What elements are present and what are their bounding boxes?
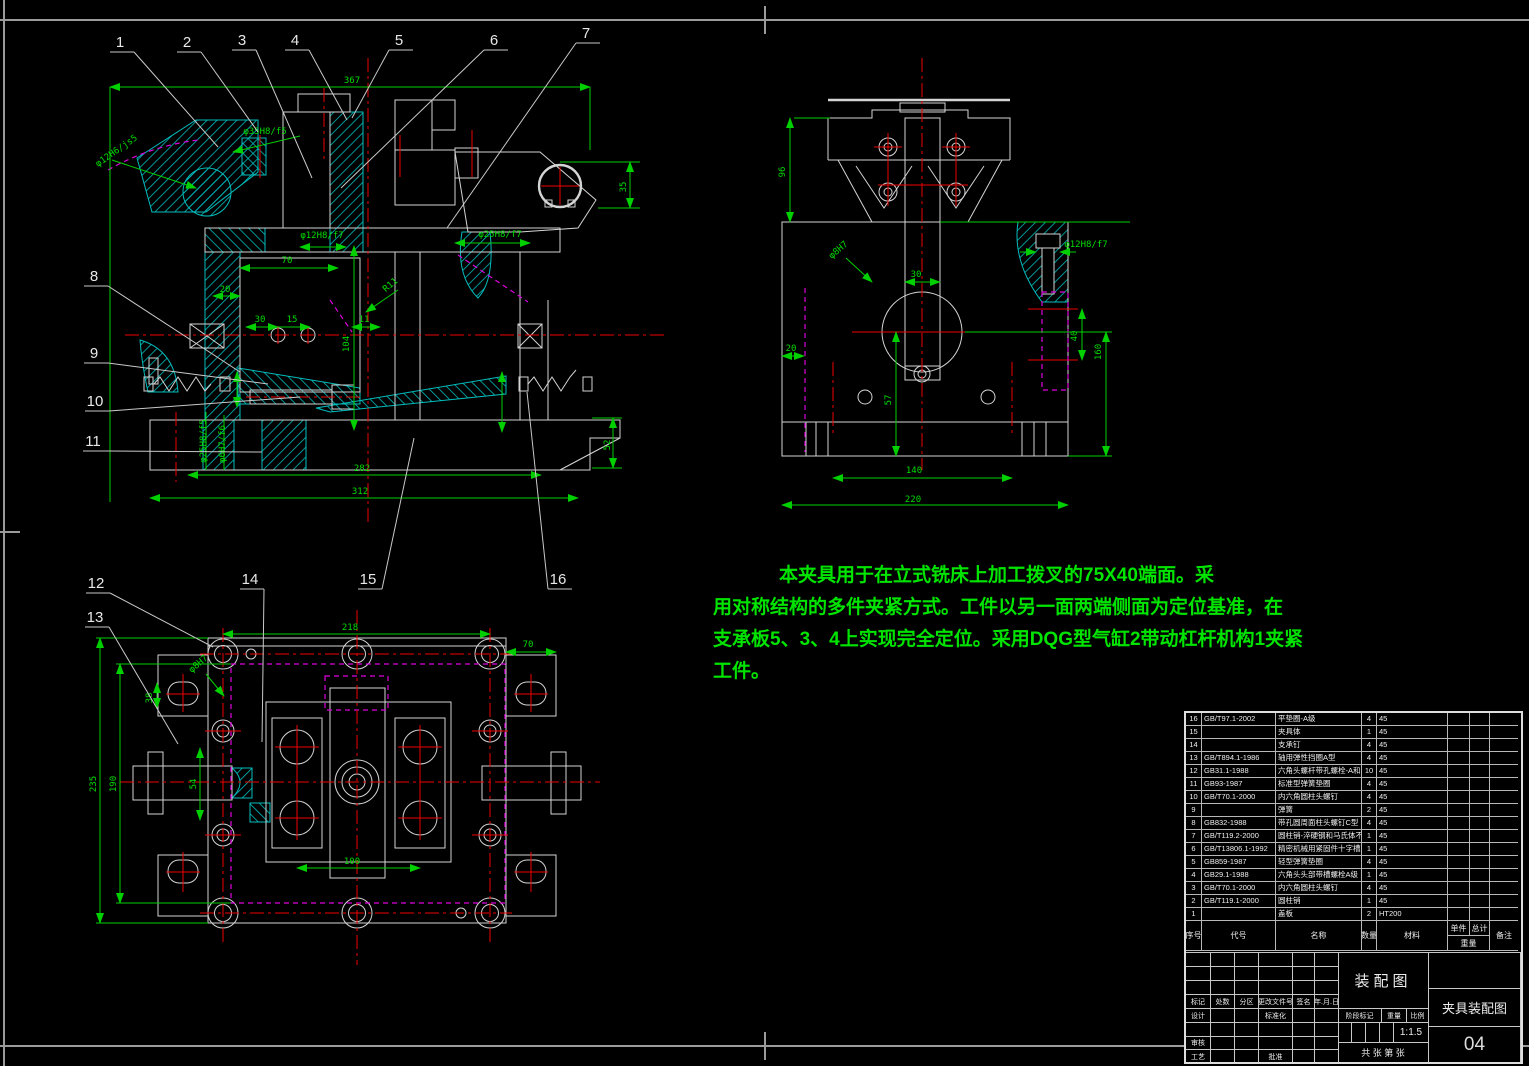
titleblock-date: 年.月.日 (1314, 994, 1339, 1009)
titleblock-cell (1234, 1049, 1259, 1064)
dimension-label: φ12H8/f7 (300, 231, 343, 241)
bom-name: 平垫圈-A级 (1276, 713, 1361, 725)
balloon-number: 15 (360, 571, 377, 588)
bom-qty: 2 (1362, 908, 1376, 920)
bom-remark (1490, 726, 1518, 738)
bom-total (1470, 739, 1489, 751)
titleblock-sign: 签名 (1292, 994, 1315, 1009)
bom-name: 六角头头部带槽螺栓A级 (1276, 869, 1361, 881)
bom-remark (1490, 752, 1518, 764)
bom-header-code: 代号 (1202, 921, 1275, 950)
dimension-label: 100 (344, 857, 360, 867)
titleblock-cell (1314, 1049, 1339, 1064)
bom-code (1202, 739, 1275, 751)
bom-no: 1 (1186, 908, 1201, 920)
titleblock-cell (1292, 980, 1315, 995)
dimension-label: 104 (342, 336, 352, 352)
titleblock-cell (1210, 952, 1235, 967)
bom-qty: 1 (1362, 830, 1376, 842)
bom-total (1470, 843, 1489, 855)
balloon-4: 4 (285, 32, 347, 120)
bom-remark (1490, 713, 1518, 725)
bom-code: GB859-1987 (1202, 856, 1275, 868)
balloon-leader (262, 589, 264, 742)
bom-qty: 4 (1362, 752, 1376, 764)
balloon-number: 13 (87, 609, 104, 626)
bom-total (1470, 856, 1489, 868)
bom-single (1448, 830, 1469, 842)
bom-material: 45 (1377, 830, 1447, 842)
bom-total (1470, 882, 1489, 894)
bom-header-weight: 重量 (1448, 936, 1489, 950)
hatch-lever-left (238, 368, 360, 404)
screw-heads (208, 639, 505, 928)
balloon-number: 9 (90, 345, 98, 362)
bom-code (1202, 804, 1275, 816)
hatch-small-block (250, 803, 270, 822)
balloon-leader (109, 627, 178, 744)
balloon-6: 6 (341, 32, 508, 188)
bom-qty: 2 (1362, 804, 1376, 816)
titleblock-cell (1258, 1022, 1293, 1037)
titleblock-cell (1210, 1036, 1235, 1050)
titleblock-cell (1185, 1022, 1211, 1037)
bom-no: 10 (1186, 791, 1201, 803)
hatch-left-hook (140, 340, 178, 392)
dimension-label: 11 (359, 315, 370, 325)
bom-total (1470, 869, 1489, 881)
bom-code: GB/T119.2-2000 (1202, 830, 1275, 842)
titleblock-cell (1314, 1022, 1339, 1037)
bom-header-total: 总计 (1470, 921, 1489, 935)
bom-total (1470, 908, 1489, 920)
stage-cell (1379, 1022, 1394, 1043)
bom-header-no: 序号 (1186, 921, 1201, 950)
bom-name: 轻型弹簧垫圈 (1276, 856, 1361, 868)
bom-name: 盖板 (1276, 908, 1361, 920)
bom-header-remark: 备注 (1490, 921, 1518, 950)
bom-code: GB/T70.1-2000 (1202, 791, 1275, 803)
bom-remark (1490, 791, 1518, 803)
bom-single (1448, 791, 1469, 803)
dimension-label: φ8H7 (827, 240, 850, 262)
bom-code: GB29.1-1988 (1202, 869, 1275, 881)
titleblock-cell (1210, 1049, 1235, 1064)
stage-mark-label: 阶段标记 (1337, 1008, 1382, 1023)
bom-code: GB/T13806.1-1992 (1202, 843, 1275, 855)
titleblock-cell (1210, 980, 1235, 995)
titleblock-cell (1185, 980, 1211, 995)
titleblock-cell (1210, 1022, 1235, 1037)
dimension-label: 312 (352, 487, 368, 497)
bom-header-qty: 数量 (1362, 921, 1376, 950)
balloon-13: 13 (85, 609, 178, 744)
balloon-number: 5 (395, 32, 403, 49)
stage-cell (1365, 1022, 1380, 1043)
titleblock-cell (1292, 1036, 1315, 1050)
balloon-number: 12 (88, 575, 105, 592)
titleblock-approve: 批准 (1258, 1049, 1293, 1064)
bom-no: 4 (1186, 869, 1201, 881)
bom-qty: 1 (1362, 869, 1376, 881)
bom-single (1448, 817, 1469, 829)
bom-name: 六角头螺杆带孔螺栓-A和B级 (1276, 765, 1361, 777)
bom-material: 45 (1377, 752, 1447, 764)
dimension-label: 30 (911, 270, 922, 280)
titleblock-cell (1258, 952, 1293, 967)
bom-material: 45 (1377, 713, 1447, 725)
bom-material: 45 (1377, 726, 1447, 738)
bolt-head (1036, 234, 1060, 248)
dimension-label: φ25H8/f5 (199, 419, 209, 462)
titleblock-cell (1258, 980, 1293, 995)
dimension-label: 190 (109, 776, 119, 792)
titleblock-cell (1185, 966, 1211, 981)
dimension-label: 140 (906, 466, 922, 476)
bom-name: 带孔圆周面柱头螺钉C型 (1276, 817, 1361, 829)
titleblock-design: 设计 (1185, 1008, 1211, 1023)
titleblock-cell (1234, 952, 1259, 967)
bom-code: GB/T70.1-2000 (1202, 882, 1275, 894)
bom-material: 45 (1377, 778, 1447, 790)
weight-label: 重量 (1381, 1008, 1407, 1023)
bom-name: 圆柱销 (1276, 895, 1361, 907)
hatch-clamp-block (242, 138, 266, 175)
scale-value: 1:1.5 (1393, 1022, 1429, 1043)
bom-qty: 1 (1362, 843, 1376, 855)
bom-single (1448, 804, 1469, 816)
bom-no: 11 (1186, 778, 1201, 790)
dimension-label: φ25H8/f7 (478, 230, 521, 240)
titleblock-zone: 分区 (1234, 994, 1259, 1009)
bom-material: 45 (1377, 791, 1447, 803)
bom-total (1470, 778, 1489, 790)
bom-code: GB832-1988 (1202, 817, 1275, 829)
titleblock-standardize: 标准化 (1258, 1008, 1293, 1023)
titleblock-cell (1234, 980, 1259, 995)
bom-remark (1490, 882, 1518, 894)
titleblock-cell (1292, 966, 1315, 981)
bom-qty: 4 (1362, 739, 1376, 751)
bom-no: 9 (1186, 804, 1201, 816)
balloon-number: 14 (242, 571, 259, 588)
bom-single (1448, 895, 1469, 907)
balloon-number: 1 (116, 34, 124, 51)
view-title: 装配图 (1337, 952, 1429, 1009)
bom-no: 15 (1186, 726, 1201, 738)
bom-material: HT200 (1377, 908, 1447, 920)
balloon-leader (107, 451, 262, 452)
dimension-label: 235 (89, 776, 99, 792)
hatch-left-wall (205, 252, 240, 420)
hatch-beam (205, 228, 265, 252)
dimension-label: 160 (1094, 344, 1104, 360)
dimension-label: R11 (381, 276, 400, 294)
dimension-label: 20 (220, 285, 231, 295)
bom-name: 夹具体 (1276, 726, 1361, 738)
bom-header-single: 单件 (1448, 921, 1469, 935)
balloon-number: 3 (238, 32, 246, 49)
bom-total (1470, 713, 1489, 725)
dimension-label: 15 (287, 315, 298, 325)
balloon-leader (382, 438, 414, 589)
right-bracket (455, 152, 596, 232)
bom-single (1448, 882, 1469, 894)
titleblock-process: 工艺 (1185, 1049, 1211, 1064)
bom-no: 7 (1186, 830, 1201, 842)
balloon-15: 15 (358, 438, 414, 589)
titleblock-cell (1292, 1008, 1315, 1023)
bom-remark (1490, 869, 1518, 881)
bom-single (1448, 778, 1469, 790)
dimension-label: 52 (603, 440, 613, 451)
dimension-label: 40 (1070, 331, 1080, 342)
bom-total (1470, 817, 1489, 829)
cad-sheet: 367φ35H8/f5φ12H6/js5φ12H8/f7φ25H8/f7R117… (0, 0, 1529, 1066)
bom-no: 12 (1186, 765, 1201, 777)
bom-total (1470, 804, 1489, 816)
dimension-label: 218 (342, 623, 358, 633)
balloon-leader (110, 593, 213, 647)
dimension-label: 282 (354, 464, 370, 474)
bom-single (1448, 765, 1469, 777)
bom-material: 45 (1377, 869, 1447, 881)
balloon-number: 4 (291, 32, 299, 49)
titleblock-cell (1292, 952, 1315, 967)
note-line: 本夹具用于在立式铣床上加工拨叉的75X40端面。采 (713, 560, 1183, 592)
bom-remark (1490, 895, 1518, 907)
balloon-5: 5 (352, 32, 413, 118)
bom-qty: 4 (1362, 856, 1376, 868)
bom-remark (1490, 739, 1518, 751)
bom-header-name: 名称 (1276, 921, 1361, 950)
bom-code: GB/T119.1-2000 (1202, 895, 1275, 907)
bom-qty: 4 (1362, 791, 1376, 803)
bom-remark (1490, 765, 1518, 777)
bom-material: 45 (1377, 895, 1447, 907)
bom-name: 内六角圆柱头螺钉 (1276, 791, 1361, 803)
hatch-contact-wedge (232, 768, 252, 798)
bom-single (1448, 739, 1469, 751)
top-view (96, 610, 600, 965)
balloon-14: 14 (240, 571, 264, 742)
dimension-label: 54 (189, 779, 199, 790)
bom-single (1448, 869, 1469, 881)
bom-no: 3 (1186, 882, 1201, 894)
bom-table: 16GB/T97.1-2002平垫圈-A级44515夹具体14514支承钉445… (1185, 712, 1518, 921)
titleblock-cell (1314, 1008, 1339, 1023)
titleblock-change_doc: 更改文件号 (1258, 994, 1293, 1009)
bom-code: GB31.1-1988 (1202, 765, 1275, 777)
dimension-label: 70 (282, 256, 293, 266)
bom-qty: 4 (1362, 713, 1376, 725)
bom-single (1448, 726, 1469, 738)
balloon-number: 8 (90, 268, 98, 285)
bom-no: 2 (1186, 895, 1201, 907)
bom-total (1470, 726, 1489, 738)
bom-material: 45 (1377, 817, 1447, 829)
dimension-label: 35 (619, 182, 629, 193)
note-line: 支承板5、3、4上实现完全定位。采用DQG型气缸2带动杠杆机构1夹紧 (713, 624, 1183, 656)
company-cell (1428, 952, 1521, 989)
balloon-leader (447, 43, 576, 228)
titleblock-cell (1314, 1036, 1339, 1050)
sheets-count: 共 张 第 张 (1337, 1042, 1429, 1063)
bom-material: 45 (1377, 804, 1447, 816)
bom-no: 14 (1186, 739, 1201, 751)
bom-qty: 4 (1362, 882, 1376, 894)
bom-qty: 1 (1362, 895, 1376, 907)
bom-total (1470, 752, 1489, 764)
dimension-label: 96 (778, 167, 788, 178)
dimension-label: 220 (905, 495, 921, 505)
bolt-shaft (1042, 248, 1054, 294)
bom-material: 45 (1377, 843, 1447, 855)
base-band (782, 422, 1068, 456)
bom-name: 圆柱销-淬硬钢和马氏体不锈钢 (1276, 830, 1361, 842)
balloon-number: 11 (85, 433, 101, 450)
dimension-label: 57 (884, 395, 894, 406)
balloon-number: 10 (87, 393, 104, 410)
bom-total (1470, 830, 1489, 842)
scale-label: 比例 (1406, 1008, 1429, 1023)
description-note: 本夹具用于在立式铣床上加工拨叉的75X40端面。采 用对称结构的多件夹紧方式。工… (713, 560, 1183, 688)
hatch-right-hook (460, 232, 491, 298)
titleblock-cell (1234, 966, 1259, 981)
dimension-label: 367 (344, 76, 360, 86)
bom-no: 6 (1186, 843, 1201, 855)
bom-qty: 10 (1362, 765, 1376, 777)
balloon-number: 6 (490, 32, 498, 49)
bom-remark (1490, 778, 1518, 790)
titleblock-cell (1292, 1022, 1315, 1037)
stage-cell (1351, 1022, 1366, 1043)
titleblock-mark: 标记 (1185, 994, 1211, 1009)
dimension-labels: 367φ35H8/f5φ12H6/js5φ12H8/f7φ25H8/f7R117… (89, 76, 1108, 867)
bom-qty: 4 (1362, 817, 1376, 829)
drawing-number: 04 (1428, 1026, 1521, 1063)
titleblock-cell (1234, 1036, 1259, 1050)
bom-single (1448, 713, 1469, 725)
bom-code (1202, 908, 1275, 920)
titleblock-cell (1210, 966, 1235, 981)
titleblock-check: 审核 (1185, 1036, 1211, 1050)
bom-code: GB/T894.1-1986 (1202, 752, 1275, 764)
balloon-12: 12 (86, 575, 213, 647)
titleblock-cell (1258, 966, 1293, 981)
bom-code (1202, 726, 1275, 738)
bom-single (1448, 843, 1469, 855)
note-line: 工件。 (713, 656, 1183, 688)
balloon-16: 16 (527, 392, 572, 589)
hatch-base-col2 (262, 420, 306, 470)
titleblock-cell (1258, 1036, 1293, 1050)
bom-total (1470, 895, 1489, 907)
titleblock-cell (1234, 1008, 1259, 1023)
balloon-number: 2 (183, 34, 191, 51)
titleblock-cell (1314, 980, 1339, 995)
bom-no: 8 (1186, 817, 1201, 829)
titleblock-cell (1185, 952, 1211, 967)
balloon-number: 16 (550, 571, 567, 588)
dimension-label: φ12H6/js5 (94, 133, 140, 169)
titleblock-cell (1210, 1008, 1235, 1023)
bom-remark (1490, 856, 1518, 868)
bom-material: 45 (1377, 856, 1447, 868)
bom-material: 45 (1377, 739, 1447, 751)
dimension-label: φ6H7/f6 (218, 425, 228, 463)
spring-right (528, 370, 576, 391)
side-view (782, 58, 1130, 505)
bom-qty: 1 (1362, 726, 1376, 738)
hatch-pivot-ball (183, 168, 231, 216)
stage-cell (1337, 1022, 1352, 1043)
bom-no: 16 (1186, 713, 1201, 725)
bom-total (1470, 765, 1489, 777)
bom-name: 精密机械用紧固件十字槽螺钉 (1276, 843, 1361, 855)
bom-material: 45 (1377, 882, 1447, 894)
titleblock-cell (1314, 952, 1339, 967)
bom-no: 5 (1186, 856, 1201, 868)
bom-no: 13 (1186, 752, 1201, 764)
bom-remark (1490, 908, 1518, 920)
bom-code: GB/T97.1-2002 (1202, 713, 1275, 725)
titleblock-count: 处数 (1210, 994, 1235, 1009)
bom-qty: 4 (1362, 778, 1376, 790)
bom-header: 序号 代号 名称 数量 材料 单件 总计 备注 重量 (1185, 920, 1518, 951)
bom-remark (1490, 804, 1518, 816)
bom-name: 弹簧 (1276, 804, 1361, 816)
bom-single (1448, 752, 1469, 764)
bom-name: 标准型弹簧垫圈 (1276, 778, 1361, 790)
balloon-leader (309, 50, 347, 120)
balloon-leader (527, 392, 548, 589)
bom-single (1448, 908, 1469, 920)
bom-material: 45 (1377, 765, 1447, 777)
bom-name: 支承钉 (1276, 739, 1361, 751)
dimension-label: φ35H8/f5 (243, 127, 286, 137)
bom-code: GB93-1987 (1202, 778, 1275, 790)
note-line: 用对称结构的多件夹紧方式。工件以另一面两端侧面为定位基准，在 (713, 592, 1183, 624)
titleblock-cell (1292, 1049, 1315, 1064)
dimension-label: 30 (255, 315, 266, 325)
bom-remark (1490, 817, 1518, 829)
titleblock-cell (1234, 1022, 1259, 1037)
dimension-label: 70 (523, 640, 534, 650)
bom-name: 内六角圆柱头螺钉 (1276, 882, 1361, 894)
bom-total (1470, 791, 1489, 803)
dimension-label: 20 (786, 344, 797, 354)
dimension-label: φ12H8/f7 (1064, 240, 1107, 250)
balloon-number: 7 (582, 25, 590, 42)
titleblock-cell (1314, 966, 1339, 981)
sheet-title: 夹具装配图 (1428, 988, 1521, 1027)
bom-remark (1490, 830, 1518, 842)
bom-header-material: 材料 (1377, 921, 1447, 950)
bom-name: 轴用弹性挡圈A型 (1276, 752, 1361, 764)
bom-remark (1490, 843, 1518, 855)
bom-single (1448, 856, 1469, 868)
